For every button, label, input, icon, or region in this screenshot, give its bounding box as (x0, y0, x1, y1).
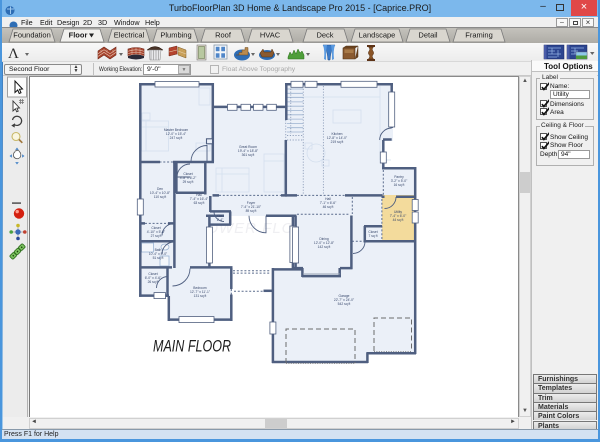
svg-text:Λ: Λ (8, 46, 19, 62)
svg-text:Landscape: Landscape (359, 31, 396, 40)
svg-text:51 sq ft: 51 sq ft (153, 256, 164, 260)
svg-text:Roof: Roof (215, 31, 232, 40)
svg-text:26 sq ft: 26 sq ft (148, 280, 159, 284)
svg-text:Deck: Deck (316, 31, 333, 40)
svg-text:131 sq ft: 131 sq ft (194, 294, 207, 298)
svg-text:247 sq ft: 247 sq ft (170, 136, 183, 140)
svg-text:142 sq ft: 142 sq ft (318, 245, 331, 249)
svg-text:110 sq ft: 110 sq ft (154, 195, 166, 199)
svg-text:MAIN FLOOR: MAIN FLOOR (153, 338, 231, 356)
svg-text:2'-4": 2'-4" (217, 218, 224, 222)
svg-text:Detail: Detail (418, 31, 438, 40)
svg-text:89 sq ft: 89 sq ft (246, 209, 257, 213)
svg-text:Electrical: Electrical (114, 31, 145, 40)
svg-text:542 sq ft: 542 sq ft (338, 302, 351, 306)
svg-text:29 sq ft: 29 sq ft (183, 180, 194, 184)
svg-text:63 sq ft: 63 sq ft (194, 201, 205, 205)
svg-text:Plumbing: Plumbing (160, 31, 191, 40)
svg-text:219 sq ft: 219 sq ft (331, 140, 344, 144)
svg-text:Floor: Floor (69, 31, 88, 40)
svg-text:7 sq ft: 7 sq ft (369, 234, 378, 238)
svg-text:Framing: Framing (465, 31, 493, 40)
svg-text:HVAC: HVAC (260, 31, 281, 40)
svg-text:44 sq ft: 44 sq ft (393, 218, 404, 222)
svg-text:16 sq ft: 16 sq ft (394, 183, 405, 187)
svg-text:27 sq ft: 27 sq ft (151, 234, 162, 238)
svg-text:361 sq ft: 361 sq ft (242, 153, 255, 157)
svg-text:46 sq ft: 46 sq ft (323, 205, 334, 209)
svg-text:Foundation: Foundation (13, 31, 51, 40)
